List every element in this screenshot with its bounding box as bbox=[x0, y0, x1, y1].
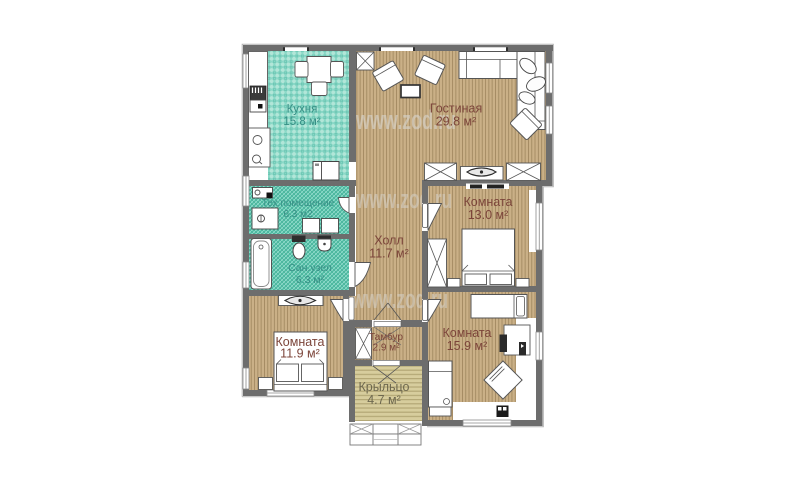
svg-text:Кухня: Кухня bbox=[287, 104, 318, 116]
svg-text:11.9 м²: 11.9 м² bbox=[280, 347, 320, 361]
svg-text:15.8 м²: 15.8 м² bbox=[283, 116, 320, 128]
svg-text:13.0 м²: 13.0 м² bbox=[468, 208, 509, 222]
svg-text:Крыльцо: Крыльцо bbox=[359, 380, 410, 394]
svg-text:2.9 м²: 2.9 м² bbox=[373, 343, 401, 354]
svg-text:6.3 м2: 6.3 м2 bbox=[283, 209, 313, 220]
svg-text:Гостиная: Гостиная bbox=[430, 102, 482, 116]
svg-text:29.8 м²: 29.8 м² bbox=[436, 115, 477, 129]
svg-text:Тех.помещение: Тех.помещение bbox=[262, 198, 335, 209]
svg-text:6.3 м²: 6.3 м² bbox=[296, 274, 325, 286]
svg-text:Комната: Комната bbox=[443, 326, 492, 340]
svg-text:Тамбур: Тамбур bbox=[369, 331, 403, 343]
svg-text:4.7 м²: 4.7 м² bbox=[367, 393, 401, 407]
svg-text:11.7 м²: 11.7 м² bbox=[369, 247, 409, 261]
svg-text:Комната: Комната bbox=[464, 195, 513, 209]
svg-text:15.9 м²: 15.9 м² bbox=[447, 339, 488, 353]
svg-text:Сан.узел: Сан.узел bbox=[288, 262, 332, 274]
svg-text:Холл: Холл bbox=[374, 234, 403, 248]
